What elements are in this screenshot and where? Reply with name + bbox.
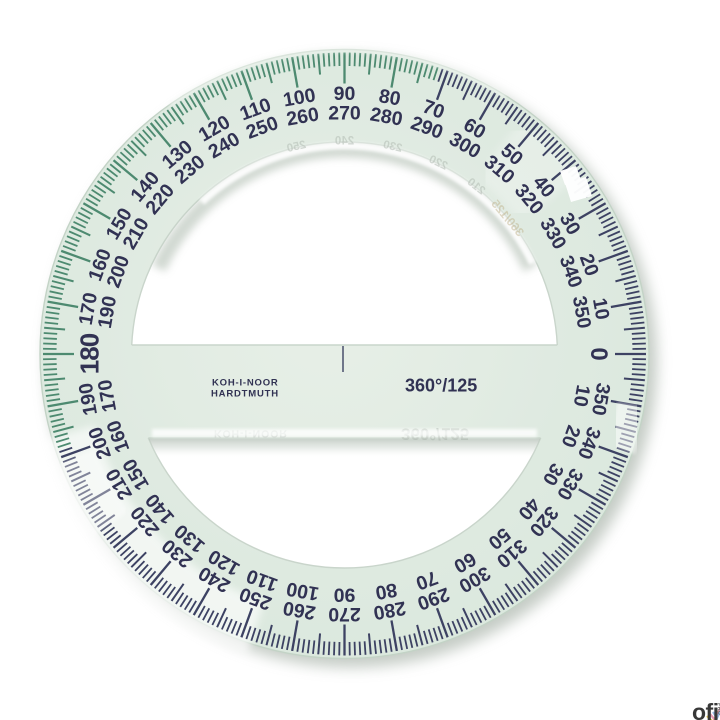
svg-text:ofi: ofi <box>692 699 719 720</box>
svg-text:270: 270 <box>328 102 361 124</box>
svg-text:HARDTMUTH: HARDTMUTH <box>211 389 279 400</box>
svg-text:0: 0 <box>585 347 612 360</box>
svg-text:KOH-I-NOOR: KOH-I-NOOR <box>212 378 279 389</box>
svg-text:10: 10 <box>569 383 594 408</box>
svg-text:240: 240 <box>335 136 354 148</box>
svg-text:PRO: PRO <box>716 703 720 716</box>
svg-text:90: 90 <box>334 584 356 606</box>
svg-text:360°/125: 360°/125 <box>405 376 477 396</box>
svg-text:180: 180 <box>75 333 105 374</box>
svg-text:80: 80 <box>374 578 399 603</box>
